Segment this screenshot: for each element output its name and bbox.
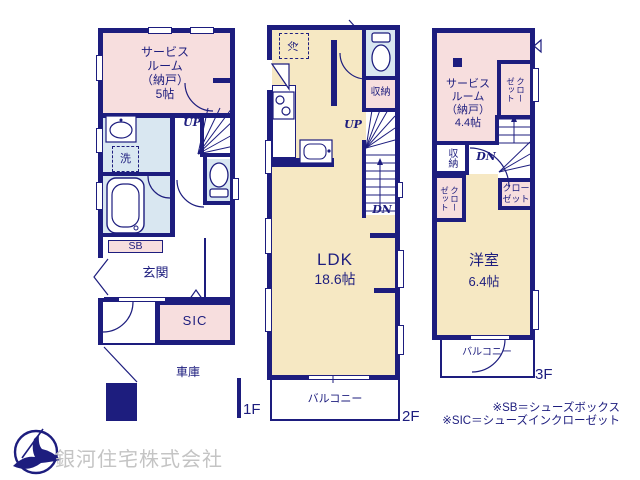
room-label-garage: 車庫 (166, 365, 210, 380)
stairs-dn-label-3f: DN (474, 150, 498, 164)
legend-sb-note: ※SB＝シューズボックス (420, 402, 620, 416)
room-label-service-3f: サービス ルーム （納戸） 4.4帖 (437, 76, 499, 132)
room-label-closet-left-3f: クロー ゼット (438, 179, 461, 218)
fridge-label: 冷 (281, 31, 307, 61)
floor-plan: サービス ルーム （納戸） 5帖 洗 UP SB 玄関 SIC 車庫 1F 冷 … (0, 0, 640, 480)
stairs-up-label-2f: UP (342, 118, 364, 132)
room-label-service-1f: サービス ルーム （納戸） 5帖 (105, 40, 225, 106)
company-name: 銀河住宅株式会社 (55, 446, 245, 476)
room-label-western: 洋室 (454, 252, 514, 270)
balcony-label-3f: バルコニー (452, 346, 522, 360)
shoe-box-label: SB (108, 239, 163, 253)
room-label-sic: SIC (160, 312, 230, 330)
floor-label-3f: 3F (535, 366, 563, 384)
room-label-closet-right-3f: クロー ゼット (500, 183, 532, 205)
room-label-closet-top-3f: クロー ゼット (502, 66, 529, 114)
legend-sic-note: ※SIC＝シューズインクローゼット (420, 415, 620, 429)
room-label-ldk-size: 18.6帖 (292, 271, 378, 288)
room-label-laundry: 洗 (112, 146, 139, 172)
room-label-storage-2f: 収納 (366, 85, 395, 100)
balcony-label-2f: バルコニー (298, 392, 372, 407)
stairs-up-label-1f: UP (181, 116, 203, 130)
room-label-entrance: 玄関 (128, 265, 183, 281)
room-label-storage-3f: 収納 (440, 146, 462, 170)
floor-label-1f: 1F (243, 401, 271, 419)
room-label-western-size: 6.4帖 (454, 274, 514, 290)
stairs-dn-label-2f: DN (370, 203, 394, 217)
room-label-ldk: LDK (300, 250, 370, 270)
